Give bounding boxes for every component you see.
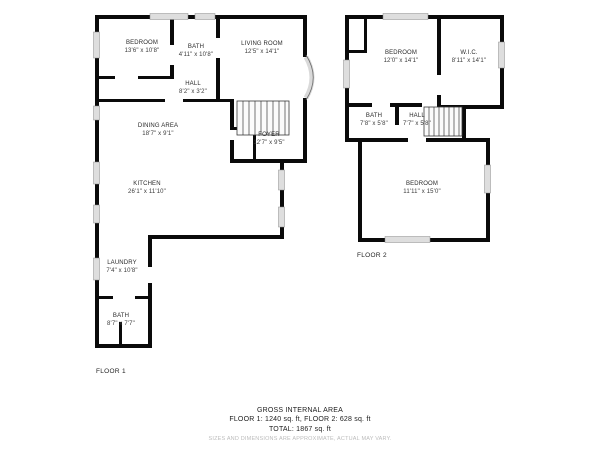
room-label-f1-bath: BATH 4'11" x 10'8" bbox=[179, 43, 213, 59]
room-label-f1-dining-area: DINING AREA 18'7" x 9'1" bbox=[138, 122, 178, 138]
room-label-f1-kitchen: KITCHEN 26'1" x 11'10" bbox=[128, 180, 166, 196]
room-label-f2-hall: HALL 7'7" x 5'8" bbox=[403, 112, 431, 128]
floorplan-page: BEDROOM 13'6" x 10'8" BATH 4'11" x 10'8"… bbox=[0, 0, 600, 450]
total-area-line: TOTAL: 1867 sq. ft bbox=[0, 425, 600, 434]
room-label-f1-hall: HALL 8'2" x 3'2" bbox=[179, 80, 207, 96]
floorplan-drawing bbox=[0, 0, 600, 450]
floor1-label: FLOOR 1 bbox=[96, 368, 126, 375]
floor1-stairs bbox=[237, 101, 289, 135]
area-summary: GROSS INTERNAL AREA FLOOR 1: 1240 sq. ft… bbox=[0, 406, 600, 443]
floor-areas-line: FLOOR 1: 1240 sq. ft, FLOOR 2: 628 sq. f… bbox=[0, 415, 600, 424]
room-label-f2-bedroom2: BEDROOM 11'11" x 15'0" bbox=[403, 180, 440, 196]
room-label-f1-bedroom: BEDROOM 13'6" x 10'8" bbox=[125, 39, 160, 55]
room-label-f2-wic: W.I.C. 8'11" x 14'1" bbox=[452, 49, 486, 65]
room-label-f2-bedroom1: BEDROOM 12'0" x 14'1" bbox=[384, 49, 419, 65]
disclaimer-text: SIZES AND DIMENSIONS ARE APPROXIMATE, AC… bbox=[0, 436, 600, 443]
gross-internal-area-title: GROSS INTERNAL AREA bbox=[0, 406, 600, 415]
floor1-walls bbox=[95, 15, 307, 348]
room-label-f1-bath2: BATH 8'7" x 7'7" bbox=[107, 312, 135, 328]
floor1-plan bbox=[94, 14, 314, 349]
room-label-f2-bath: BATH 7'8" x 5'8" bbox=[360, 112, 388, 128]
bay-window bbox=[306, 55, 313, 100]
room-label-f1-laundry: LAUNDRY 7'4" x 10'8" bbox=[106, 259, 137, 275]
floor2-label: FLOOR 2 bbox=[357, 252, 387, 259]
room-label-f1-living-room: LIVING ROOM 12'5" x 14'1" bbox=[241, 40, 283, 56]
room-label-f1-foyer: FOYER 12'7" x 9'5" bbox=[253, 131, 284, 147]
